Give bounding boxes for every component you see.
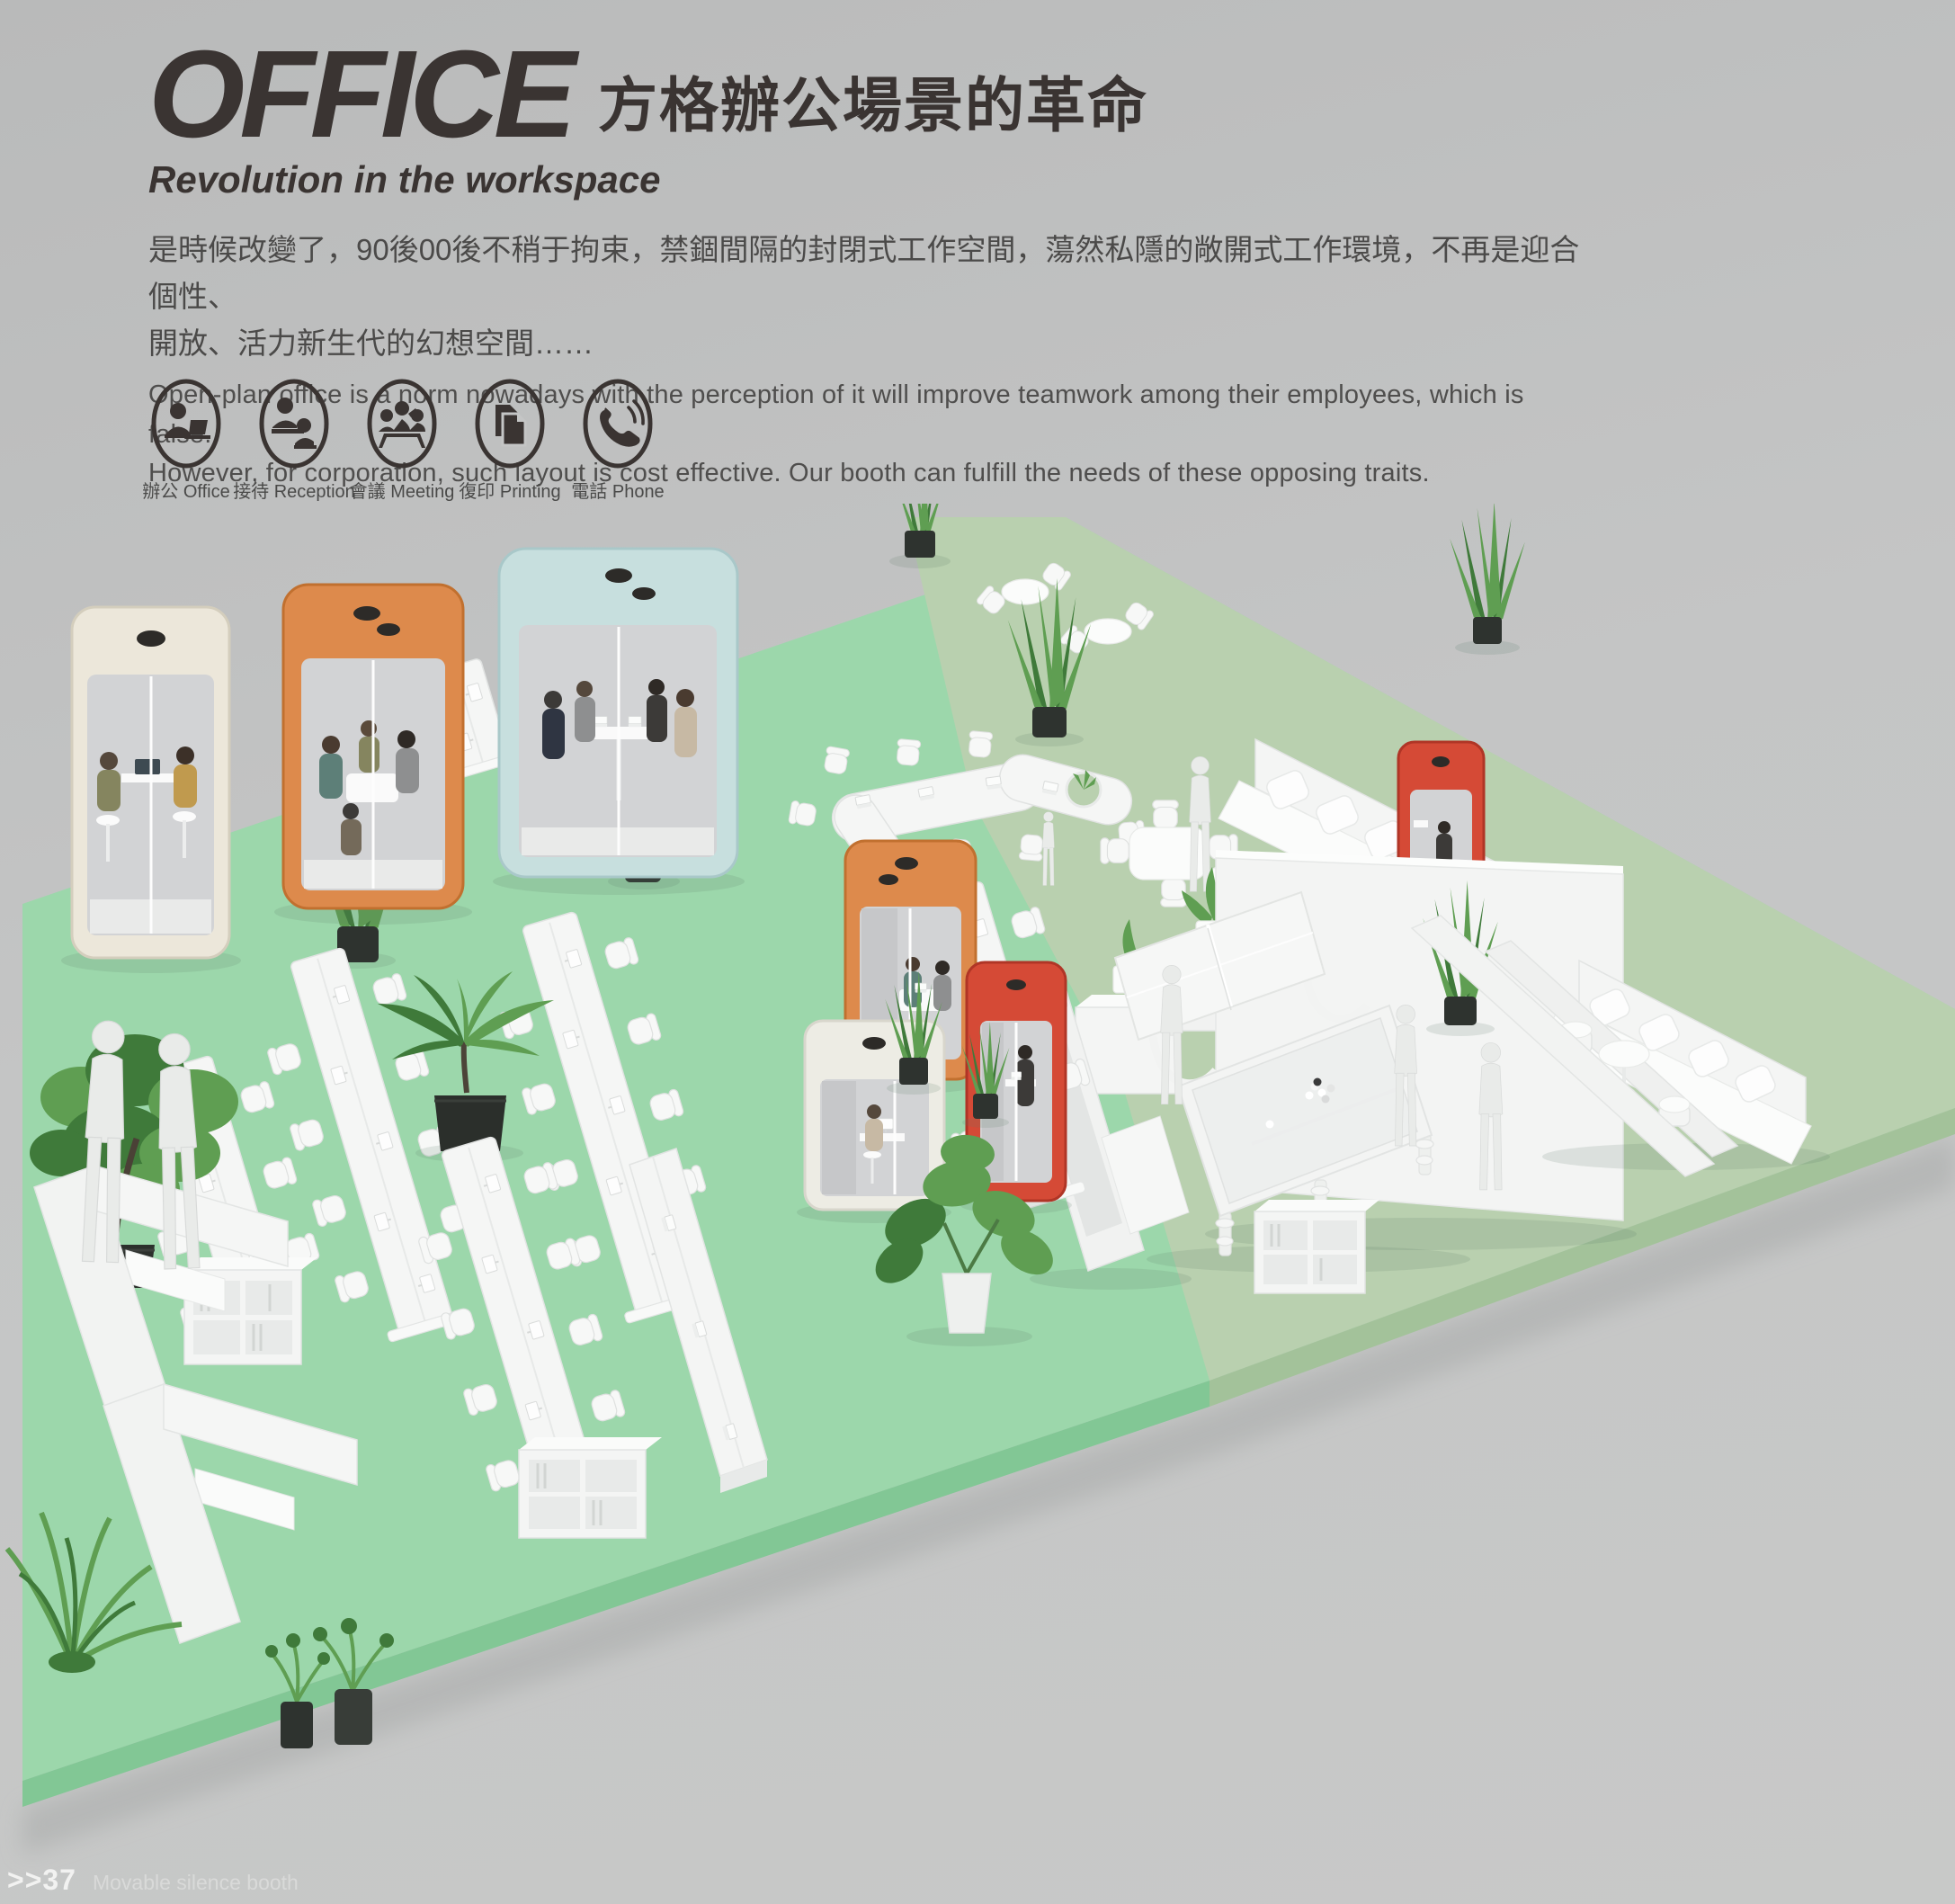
- footer-caption: Movable silence booth: [93, 1871, 299, 1895]
- meeting-icon: [366, 378, 438, 469]
- feature-label: 電話 Phone: [571, 477, 664, 503]
- feature-label: 會議 Meeting: [350, 477, 455, 503]
- feature-label: 辦公 Office: [142, 477, 229, 503]
- feature-label: 復印 Printing: [459, 477, 560, 503]
- brochure-page: OFFICE 方格辦公場景的革命 Revolution in the works…: [0, 0, 1955, 1904]
- office-floorplan-render: [0, 504, 1955, 1904]
- feature-phone: 電話 Phone: [565, 378, 671, 503]
- reception-icon: [258, 378, 330, 469]
- intro-zh-line2: 開放、活力新生代的幻想空間……: [148, 320, 1587, 367]
- feature-label: 接待 Reception: [233, 477, 355, 503]
- title-row: OFFICE 方格辦公場景的革命: [148, 32, 1605, 156]
- feature-reception: 接待 Reception: [241, 378, 347, 503]
- page-title-zh: 方格辦公場景的革命: [598, 58, 1148, 144]
- page-title: OFFICE: [148, 32, 571, 156]
- phone-icon: [582, 378, 654, 469]
- bookshelf-3: [1254, 1200, 1379, 1293]
- booth-blue-meeting: [493, 549, 745, 895]
- page-footer: >>37 Movable silence booth: [7, 1864, 299, 1897]
- feature-printing: 復印 Printing: [457, 378, 563, 503]
- feature-icons-row: 辦公 Office 接待 Reception: [133, 378, 671, 503]
- bookshelf-2: [519, 1437, 662, 1538]
- printing-icon: [474, 378, 546, 469]
- office-icon: [150, 378, 222, 469]
- plant-top-right: [1450, 504, 1525, 655]
- intro-zh-line1: 是時候改變了，90後00後不稍于拘束，禁錮間隔的封閉式工作空間，蕩然私隱的敞開式…: [148, 227, 1587, 320]
- page-subtitle: Revolution in the workspace: [148, 158, 1605, 201]
- page-number-marker: >>37: [7, 1864, 76, 1897]
- feature-office: 辦公 Office: [133, 378, 239, 503]
- booth-orange-large: [274, 585, 472, 925]
- booth-cream-duo: [61, 607, 241, 973]
- feature-meeting: 會議 Meeting: [349, 378, 455, 503]
